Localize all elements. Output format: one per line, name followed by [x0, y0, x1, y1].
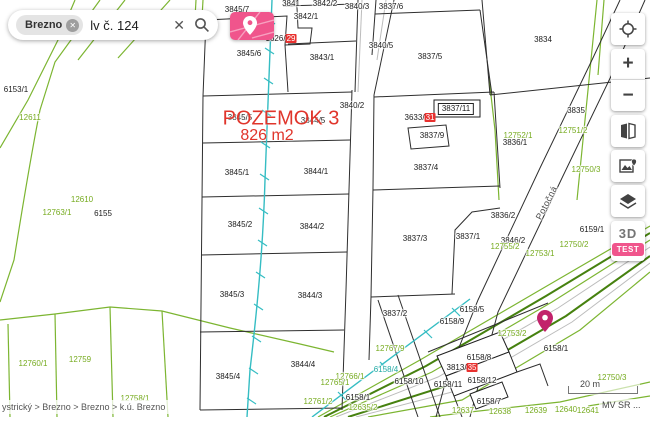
clear-search-icon[interactable]: ✕	[173, 17, 185, 34]
search-chip-label: Brezno	[25, 19, 62, 31]
map-viewport[interactable]: 3845/738413842/23840/33837/63842/11626/2…	[0, 0, 650, 417]
marker-tool-panel[interactable]	[230, 12, 274, 40]
layers-button[interactable]	[611, 185, 645, 217]
test-badge: TEST	[612, 243, 644, 256]
search-chip-brezno[interactable]: Brezno ✕	[16, 15, 83, 35]
map-canvas[interactable]	[0, 0, 650, 417]
locate-button[interactable]	[611, 13, 645, 45]
search-input[interactable]: lv č. 124	[90, 18, 164, 33]
black-parcel-lines	[200, 0, 650, 417]
map-pin-icon	[230, 12, 274, 40]
result-marker-pin[interactable]	[537, 310, 553, 332]
search-bar[interactable]: Brezno ✕ lv č. 124 ✕	[8, 10, 218, 40]
scale-bar: 20 m	[566, 381, 640, 395]
green-parcel-lines	[0, 0, 650, 417]
attribution[interactable]: MV SR ...	[599, 399, 644, 411]
view-3d-label: 3D	[619, 226, 638, 241]
chip-remove-icon[interactable]: ✕	[66, 19, 79, 32]
breadcrumb[interactable]: ystrický > Brezno > Brezno > k.ú. Brezno	[0, 400, 171, 414]
basemap-image-icon	[619, 157, 638, 175]
layers-icon	[618, 192, 638, 210]
basemap-button[interactable]	[611, 150, 645, 182]
view-3d-button[interactable]: 3D TEST	[611, 221, 645, 261]
search-icon[interactable]	[194, 17, 210, 33]
compare-maps-button[interactable]	[611, 115, 645, 147]
zoom-in-button[interactable]: +	[611, 49, 645, 80]
scale-bar-rule	[568, 386, 638, 394]
stream-lines	[247, 0, 470, 417]
compare-maps-icon	[619, 122, 637, 140]
zoom-out-button[interactable]: −	[611, 80, 645, 111]
gps-crosshair-icon	[619, 20, 637, 38]
selected-parcel-area: 826 m2	[240, 127, 293, 145]
scale-bar-label: 20 m	[580, 379, 600, 389]
